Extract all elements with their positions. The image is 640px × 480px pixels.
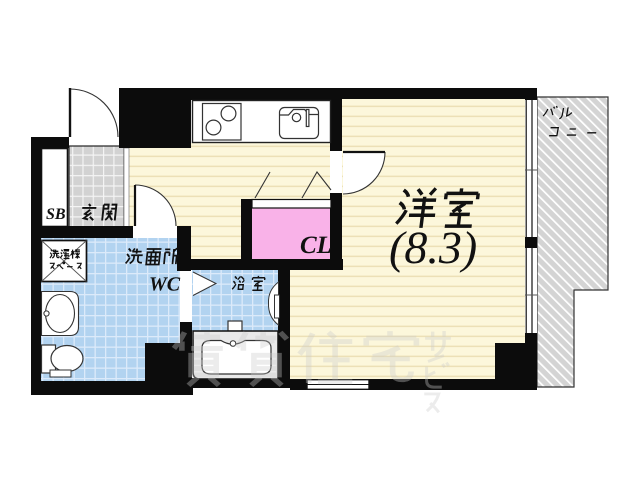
svg-text:(8.3): (8.3)	[389, 222, 477, 273]
svg-text:CL: CL	[300, 232, 332, 259]
svg-text:WC: WC	[149, 274, 181, 296]
svg-text:SB: SB	[46, 206, 66, 223]
